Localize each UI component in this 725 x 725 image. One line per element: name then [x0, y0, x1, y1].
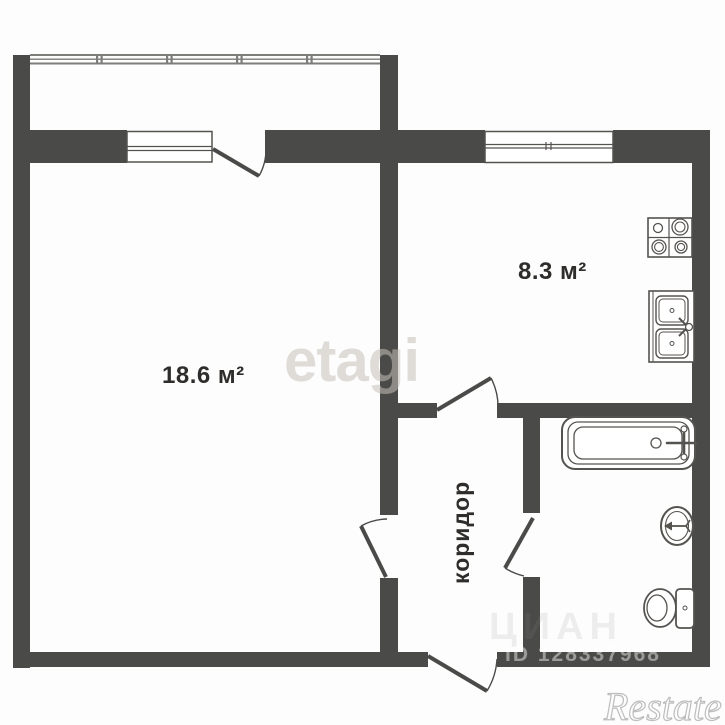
wall-centre-lower — [380, 578, 398, 652]
etagi-watermark: etagi — [284, 326, 419, 395]
door-living-room — [361, 519, 387, 577]
door-kitchen — [437, 378, 498, 410]
floor-plan: 18.6 м² 8.3 м² коридор etagi ЦИАН ID 128… — [0, 0, 725, 725]
window-kitchen — [485, 132, 613, 163]
toilet-icon — [644, 589, 694, 628]
kitchen-sink-icon — [649, 291, 694, 362]
wall-bathroom-upper — [523, 417, 540, 513]
bathtub-icon — [562, 417, 696, 469]
wall-left — [13, 55, 30, 668]
wall-corridor-top-right — [497, 403, 692, 418]
wall-bottom-left — [13, 652, 428, 667]
stove-icon — [648, 218, 692, 257]
balcony-glazing — [30, 54, 380, 65]
wall-corridor-top-left — [398, 403, 437, 418]
wall-right — [692, 130, 710, 667]
corridor-label: коридор — [448, 489, 475, 584]
door-balcony — [213, 149, 266, 176]
door-entrance — [428, 656, 497, 691]
cian-id-watermark: ID 128337968 — [505, 643, 661, 667]
window-living-room — [127, 132, 212, 163]
wall-top-left — [30, 130, 127, 163]
washbasin-icon — [661, 507, 693, 545]
restate-watermark: Restate — [604, 683, 722, 725]
door-bathroom — [505, 518, 533, 576]
living-room-area-label: 18.6 м² — [162, 362, 245, 390]
wall-top-mid — [265, 130, 485, 163]
kitchen-area-label: 8.3 м² — [518, 258, 587, 286]
